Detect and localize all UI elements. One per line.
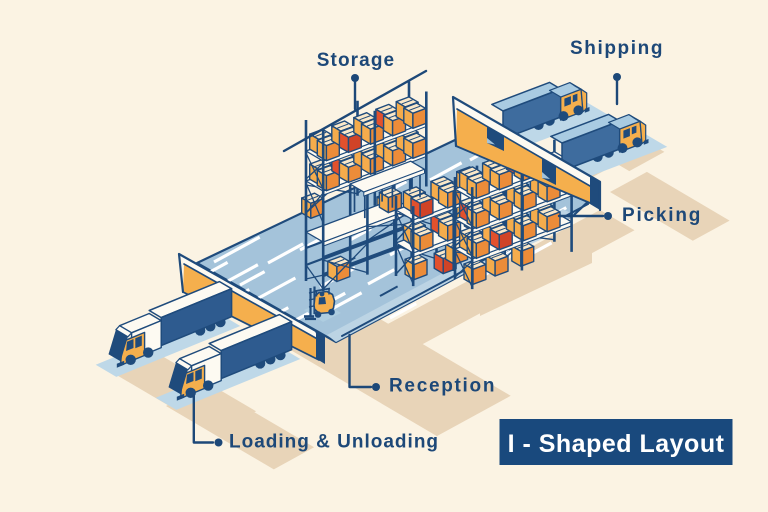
svg-text:Loading & Unloading: Loading & Unloading bbox=[229, 432, 439, 453]
svg-text:Storage: Storage bbox=[317, 50, 395, 71]
svg-text:Shipping: Shipping bbox=[570, 38, 664, 59]
svg-text:I - Shaped Layout: I - Shaped Layout bbox=[508, 430, 725, 458]
svg-text:Picking: Picking bbox=[622, 205, 702, 226]
svg-text:Reception: Reception bbox=[389, 376, 496, 397]
